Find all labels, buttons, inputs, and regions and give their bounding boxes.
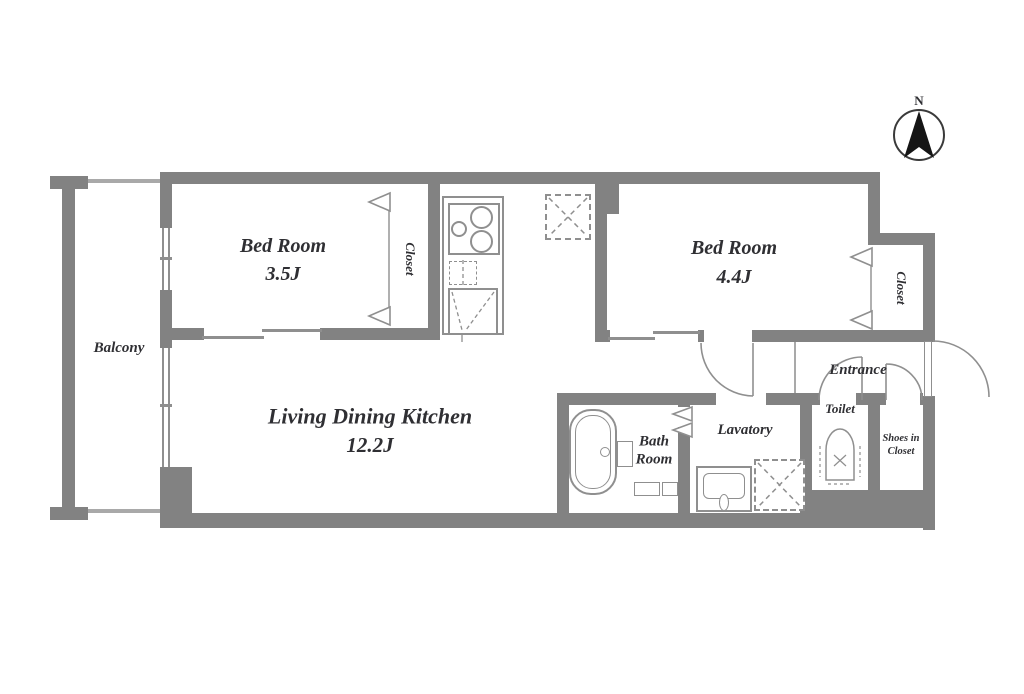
wash-basin-faucet	[719, 494, 729, 511]
hall-door-swing	[701, 343, 753, 396]
stove-burner	[470, 206, 493, 229]
wall-bath-lavatory-stub	[678, 393, 690, 407]
kitchen-sink	[448, 288, 498, 335]
wall-shoes-door-stub-r	[920, 393, 923, 405]
wall-toilet-door-stub-r	[856, 393, 868, 405]
bedroom1-window	[160, 228, 172, 290]
wall-bath-top	[557, 393, 690, 405]
wall-toilet-shoes	[868, 393, 880, 490]
washing-machine-space	[754, 459, 805, 511]
entrance-door-swing	[933, 341, 989, 397]
folding-door-triangle	[851, 248, 872, 266]
wall-bedroom2-pillar	[595, 184, 619, 214]
ldk-window	[160, 348, 172, 467]
wall-lavatory-top-l	[690, 393, 716, 405]
stove-burner	[451, 221, 467, 237]
bath-counter	[634, 482, 660, 496]
window-line	[168, 348, 170, 467]
wall-bedroom1-bottom-left	[172, 328, 204, 340]
folding-door-triangle	[369, 193, 390, 211]
wall-left-pillar	[160, 467, 192, 513]
shoes-label: Shoes in Closet	[882, 433, 919, 459]
overlay-graphics	[0, 0, 1024, 694]
bedroom1-sliding-door-panel	[202, 336, 264, 339]
bathtub-drain	[600, 447, 610, 457]
lavatory-label: Lavatory	[718, 421, 773, 439]
ldk-size: 12.2J	[346, 433, 393, 459]
toilet-center-mark	[834, 455, 846, 466]
balcony-rail-bar	[62, 176, 75, 520]
wall-right-upper	[923, 233, 935, 340]
wall-bath-left	[557, 393, 569, 513]
wall-toilet-door-stub-l	[812, 393, 820, 405]
toilet-bowl	[826, 429, 854, 480]
wall-left-b	[160, 290, 172, 348]
wall-lavatory-top-r	[766, 393, 800, 405]
folding-door-triangle	[369, 307, 390, 325]
bedroom2-sliding-door-panel	[608, 337, 655, 340]
toilet-label: Toilet	[825, 401, 855, 417]
bedroom2-size: 4.4J	[717, 265, 752, 289]
wall-bottom	[160, 513, 935, 528]
closet1-label: Closet	[402, 242, 418, 275]
bedroom1-name: Bed Room	[240, 234, 326, 258]
stove-burner	[470, 230, 493, 253]
balcony-rail-top	[88, 179, 162, 183]
bedroom2-name: Bed Room	[691, 236, 777, 260]
kitchen-under-counter	[449, 261, 477, 285]
window-line	[162, 348, 164, 467]
wall-bath-lavatory	[678, 427, 690, 513]
bath-label: Bath Room	[636, 433, 673, 470]
balcony-label: Balcony	[94, 339, 145, 357]
folding-door-triangle	[851, 311, 872, 329]
bedroom2-sliding-door-panel	[653, 331, 700, 334]
window-tick	[160, 257, 172, 260]
balcony-rail-bottom-cap	[50, 507, 88, 520]
window-tick	[160, 404, 172, 407]
bath-folding-door-triangle	[673, 407, 692, 421]
ldk-name: Living Dining Kitchen	[268, 404, 472, 431]
wall-closet1-kitchen	[428, 184, 440, 330]
wall-bottom-right-thick	[800, 490, 935, 514]
wall-bedroom1-bottom-right	[320, 328, 440, 340]
compass-n-label: N	[914, 93, 923, 109]
entrance-label: Entrance	[829, 361, 887, 379]
bedroom1-sliding-door-panel	[262, 329, 322, 332]
wall-left-a	[160, 172, 172, 228]
wall-top	[160, 172, 880, 184]
floor-plan: N	[0, 0, 1024, 694]
balcony-rail-bottom	[88, 509, 162, 513]
north-compass	[893, 109, 945, 161]
wall-bedroom2-bottom-b	[752, 330, 935, 342]
bedroom1-size: 3.5J	[266, 262, 301, 286]
bathtub-ledge	[617, 441, 633, 467]
entrance-door-leaf	[924, 341, 932, 397]
shoes-closet-door-swing	[886, 364, 922, 400]
entrance-threshold-line	[794, 342, 796, 393]
wall-shoes-door-stub-l	[880, 393, 886, 405]
bath-counter-small	[662, 482, 678, 496]
closet2-label: Closet	[893, 271, 909, 304]
refrigerator-space	[545, 194, 591, 240]
wall-bedroom2-bottom-a	[595, 330, 610, 342]
